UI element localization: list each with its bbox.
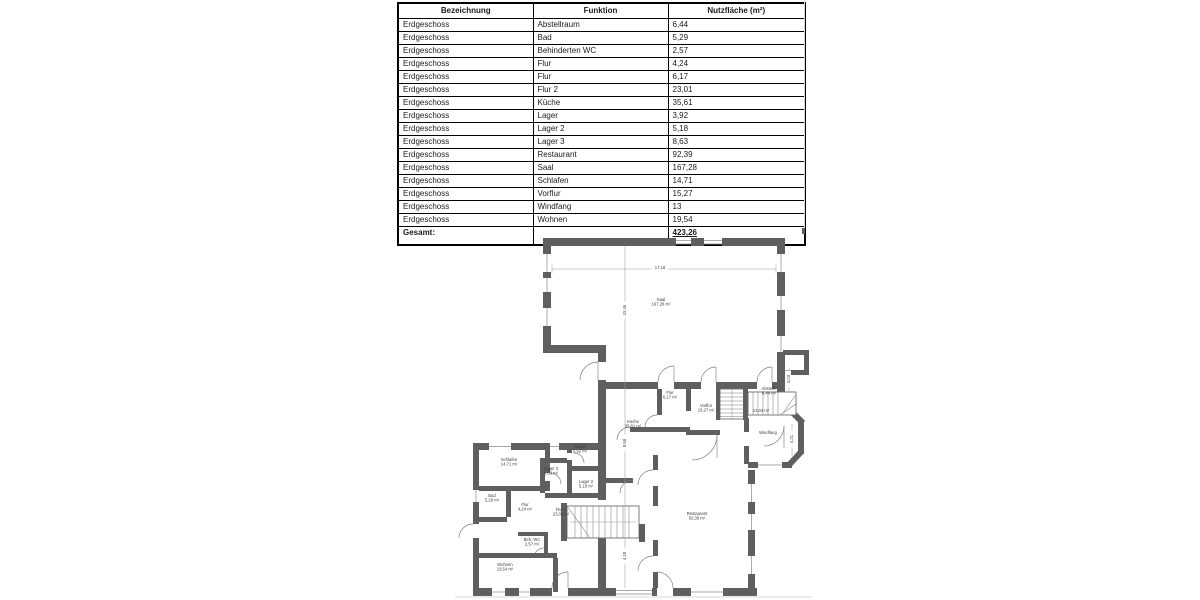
cell-flaeche: 5,29 (668, 32, 805, 45)
cell-flaeche: 15,27 (668, 188, 805, 201)
table-row: Erdgeschoss Schlafen 14,71 (398, 175, 805, 188)
dimension-label: 3,03 (785, 371, 791, 388)
floor-plan: 17,1815,468,684,183,034,21 Saal167,28 m²… (450, 228, 820, 600)
cell-bezeichnung: Erdgeschoss (398, 71, 533, 84)
col-header-bezeichnung: Bezeichnung (398, 3, 533, 19)
cell-flaeche: 35,61 (668, 97, 805, 110)
cell-funktion: Windfang (533, 201, 668, 214)
cell-funktion: Flur (533, 58, 668, 71)
cell-funktion: Vorflur (533, 188, 668, 201)
room-label: Restaurant92,39 m² (687, 511, 708, 521)
cell-bezeichnung: Erdgeschoss (398, 19, 533, 32)
cell-funktion: Wohnen (533, 214, 668, 227)
cell-flaeche: 167,28 (668, 162, 805, 175)
table-row: Erdgeschoss Saal 167,28 (398, 162, 805, 175)
table-row: Erdgeschoss Abstellraum 6,44 (398, 19, 805, 32)
room-label: Saal167,28 m² (652, 297, 671, 307)
table-row: Erdgeschoss Flur 6,17 (398, 71, 805, 84)
table-row: Erdgeschoss Flur 4,24 (398, 58, 805, 71)
cell-bezeichnung: Erdgeschoss (398, 214, 533, 227)
table-row: Erdgeschoss Vorflur 15,27 (398, 188, 805, 201)
room-label: Wohnen19,54 m² (497, 562, 514, 572)
cell-flaeche: 2,57 (668, 45, 805, 58)
cell-flaeche: 13 (668, 201, 805, 214)
cell-funktion: Restaurant (533, 149, 668, 162)
dimension-label: 8,68 (621, 435, 627, 452)
cell-funktion: Küche (533, 97, 668, 110)
cell-bezeichnung: Erdgeschoss (398, 201, 533, 214)
cell-flaeche: 19,54 (668, 214, 805, 227)
cell-funktion: Lager 2 (533, 123, 668, 136)
col-header-nutzflaeche: Nutzfläche (m²) (668, 3, 805, 19)
cell-bezeichnung: Erdgeschoss (398, 162, 533, 175)
cell-flaeche: 92,39 (668, 149, 805, 162)
room-label: Windfang (759, 430, 777, 435)
table-row: Erdgeschoss Flur 2 23,01 (398, 84, 805, 97)
room-label: Bad5,29 m² (485, 493, 500, 503)
cell-funktion: Flur 2 (533, 84, 668, 97)
cell-flaeche: 4,24 (668, 58, 805, 71)
svg-text:4,18: 4,18 (622, 551, 627, 560)
dimension-label: 17,18 (652, 264, 669, 270)
svg-text:4,21: 4,21 (789, 434, 794, 443)
cell-funktion: Schlafen (533, 175, 668, 188)
room-label: Lager 25,18 m² (579, 479, 594, 489)
cell-bezeichnung: Erdgeschoss (398, 188, 533, 201)
svg-text:3,03: 3,03 (786, 374, 791, 383)
cell-bezeichnung: Erdgeschoss (398, 110, 533, 123)
cell-bezeichnung: Erdgeschoss (398, 97, 533, 110)
cell-funktion: Abstellraum (533, 19, 668, 32)
table-row: Erdgeschoss Wohnen 19,54 (398, 214, 805, 227)
cell-bezeichnung: Erdgeschoss (398, 45, 533, 58)
table-row: Erdgeschoss Lager 3 8,63 (398, 136, 805, 149)
room-label: Küche35,61 m² (625, 419, 642, 429)
room-label: Lager 38,63 m² (544, 466, 559, 476)
page-edge-line (804, 0, 805, 231)
svg-text:8,68: 8,68 (622, 438, 627, 447)
table-row: Erdgeschoss Lager 3,92 (398, 110, 805, 123)
svg-text:17,18: 17,18 (655, 265, 666, 270)
cell-funktion: Saal (533, 162, 668, 175)
col-header-funktion: Funktion (533, 3, 668, 19)
table-row: Erdgeschoss Küche 35,61 (398, 97, 805, 110)
cell-funktion: Bad (533, 32, 668, 45)
table-row: Erdgeschoss Behinderten WC 2,57 (398, 45, 805, 58)
cell-flaeche: 14,71 (668, 175, 805, 188)
cell-flaeche: 5,18 (668, 123, 805, 136)
cell-bezeichnung: Erdgeschoss (398, 58, 533, 71)
dimension-label: 4,18 (621, 548, 627, 565)
cell-flaeche: 3,92 (668, 110, 805, 123)
dimension-label: 15,46 (621, 302, 627, 319)
table-header-row: Bezeichnung Funktion Nutzfläche (m²) (398, 3, 805, 19)
room-label: Flur6,17 m² (663, 390, 678, 400)
cell-bezeichnung: Erdgeschoss (398, 123, 533, 136)
room-label: Abstellr.6,44 m² (762, 386, 777, 396)
room-schedule-table: Bezeichnung Funktion Nutzfläche (m²) Erd… (397, 2, 806, 246)
room-label: Beh. WC2,57 m² (524, 537, 541, 547)
table-row: Erdgeschoss Bad 5,29 (398, 32, 805, 45)
cell-bezeichnung: Erdgeschoss (398, 32, 533, 45)
room-label: Schlafen14,71 m² (501, 457, 518, 467)
table-row: Erdgeschoss Restaurant 92,39 (398, 149, 805, 162)
cell-funktion: Lager 3 (533, 136, 668, 149)
room-label: Vorflur15,27 m² (698, 403, 715, 413)
cell-bezeichnung: Erdgeschoss (398, 175, 533, 188)
cell-flaeche: 6,44 (668, 19, 805, 32)
cell-funktion: Lager (533, 110, 668, 123)
cell-funktion: Flur (533, 71, 668, 84)
table-row: Erdgeschoss Windfang 13 (398, 201, 805, 214)
cell-bezeichnung: Erdgeschoss (398, 84, 533, 97)
cell-flaeche: 8,63 (668, 136, 805, 149)
cell-flaeche: 6,17 (668, 71, 805, 84)
room-schedule: Bezeichnung Funktion Nutzfläche (m²) Erd… (397, 2, 804, 246)
table-row: Erdgeschoss Lager 2 5,18 (398, 123, 805, 136)
cell-bezeichnung: Erdgeschoss (398, 149, 533, 162)
cell-bezeichnung: Erdgeschoss (398, 136, 533, 149)
dimension-label: 4,21 (788, 431, 794, 448)
cell-flaeche: 23,01 (668, 84, 805, 97)
room-label: 13,03 m² (753, 408, 770, 413)
cell-funktion: Behinderten WC (533, 45, 668, 58)
room-label: Flur4,24 m² (518, 502, 533, 512)
svg-text:15,46: 15,46 (622, 304, 627, 315)
